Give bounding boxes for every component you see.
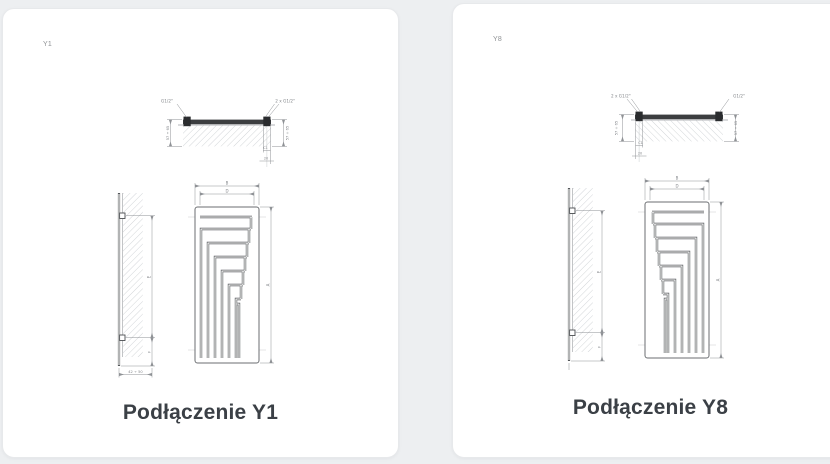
radiator-side-view: E F — [556, 180, 616, 375]
port-size-label: G1/2" — [733, 94, 745, 99]
card-code-label: Y8 — [493, 36, 502, 43]
height-dimension-label: E — [596, 270, 601, 273]
height-dimension-label: A — [715, 278, 720, 281]
port-size-label: 2 x G1/2" — [275, 99, 295, 104]
height-dimension-label: E — [146, 275, 151, 278]
depth-range-label: 57 ÷ 65 — [166, 126, 170, 140]
wall-section — [631, 120, 728, 141]
outer-width-label: B — [676, 176, 679, 181]
wall-distance-label: 42 ÷ 50 — [128, 370, 143, 374]
radiator-front-view: B D A — [635, 172, 730, 367]
depth-range-label: 57 ÷ 65 — [734, 121, 738, 135]
depth-range-label: 57 ÷ 65 — [285, 126, 289, 140]
offset-dimension-label: C1 — [638, 141, 643, 145]
depth-range-label: 57 ÷ 65 — [615, 121, 619, 135]
outer-width-label: B — [226, 181, 229, 186]
connection-card-y1: Y1 — [2, 8, 399, 458]
port-size-label: G1/2" — [161, 99, 173, 104]
bottom-offset-label: F — [147, 351, 151, 353]
inner-width-label: D — [225, 189, 228, 194]
height-dimension-label: A — [265, 283, 270, 286]
connection-top-view: 2 x G1/2" G1/2" 57 ÷ 65 57 ÷ 65 C1 20 — [603, 88, 753, 168]
inner-width-label: D — [675, 184, 678, 189]
card-caption: Podłączenie Y8 — [453, 396, 830, 420]
radiator-side-view: E F 42 ÷ 50 — [106, 185, 166, 380]
spacing-dimension-label: 20 — [264, 157, 268, 161]
radiator-front-view: B D A — [185, 177, 280, 372]
offset-dimension-label: C1 — [263, 146, 268, 150]
card-code-label: Y1 — [43, 41, 52, 48]
wall-section — [178, 125, 275, 146]
connection-top-view: G1/2" 2 x G1/2" 57 ÷ 65 57 ÷ 65 C1 20 — [153, 93, 303, 173]
port-size-label: 2 x G1/2" — [611, 94, 631, 99]
bottom-offset-label: F — [597, 346, 601, 348]
card-caption: Podłączenie Y1 — [3, 401, 398, 425]
spacing-dimension-label: 20 — [638, 152, 642, 156]
connection-card-y8: Y8 — [452, 3, 830, 458]
